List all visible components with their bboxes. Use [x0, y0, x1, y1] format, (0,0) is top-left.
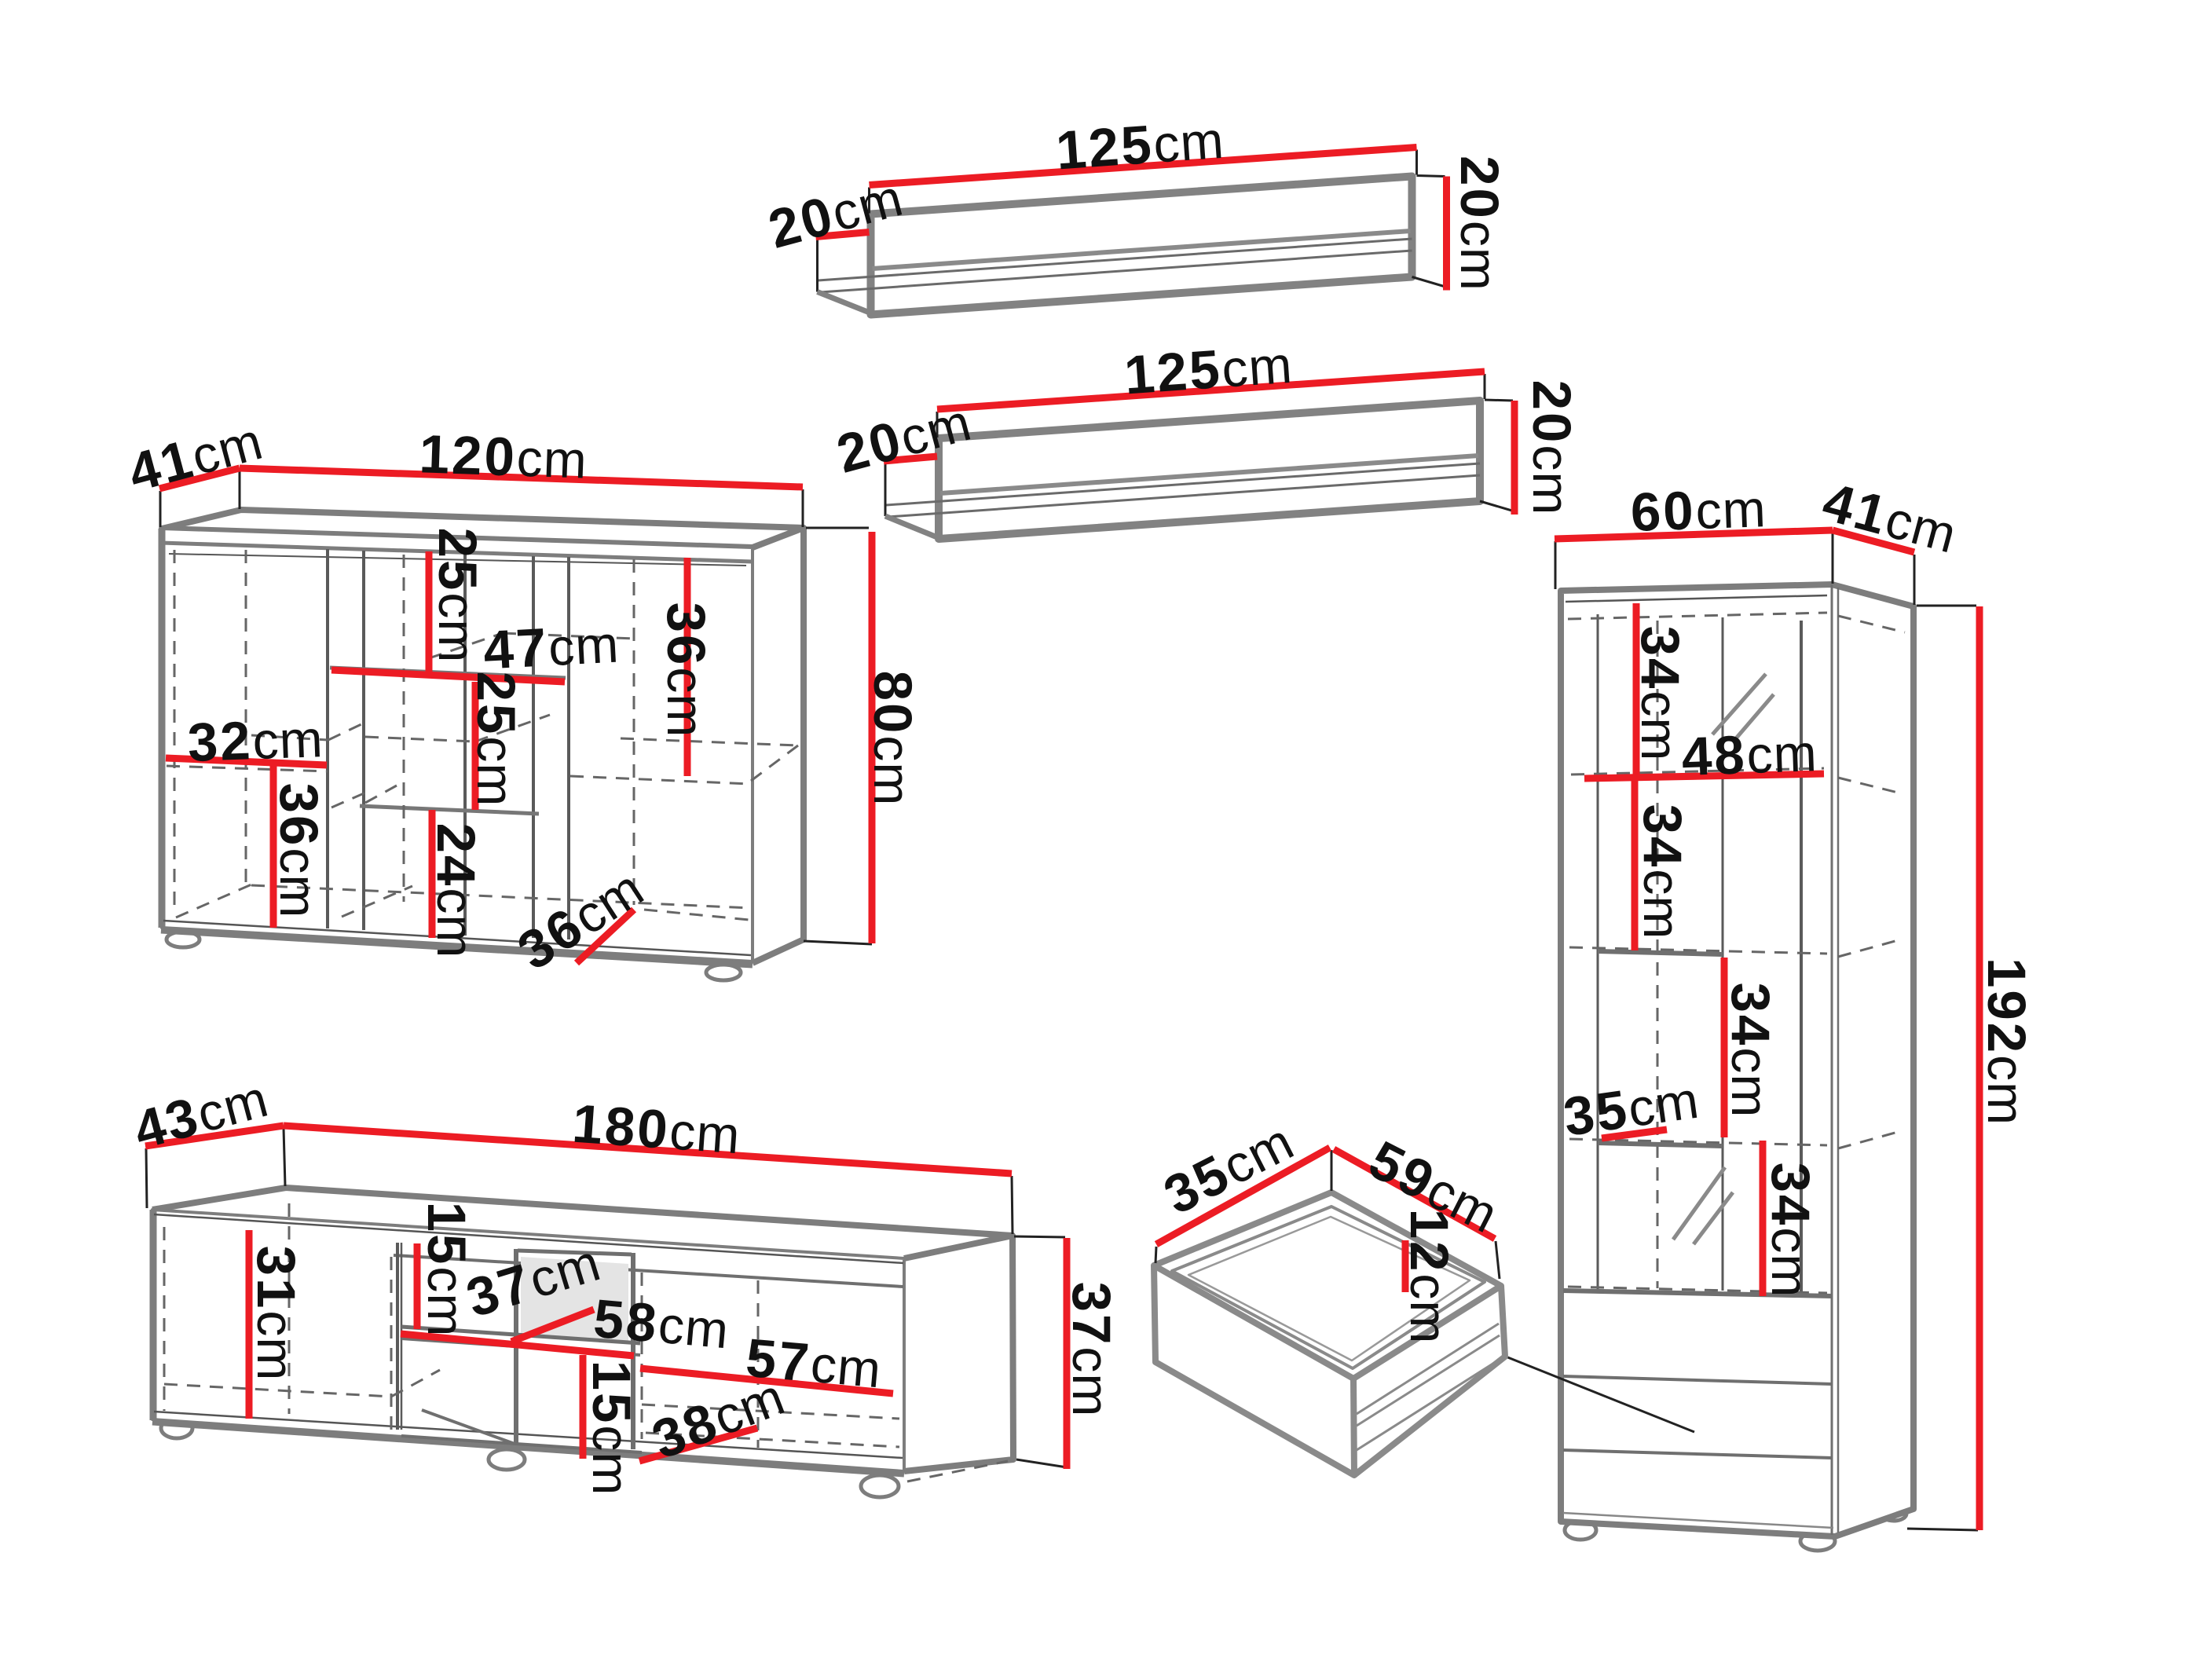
- svg-text:120cm: 120cm: [418, 423, 588, 489]
- svg-text:24cm: 24cm: [426, 823, 486, 959]
- svg-text:60cm: 60cm: [1630, 478, 1767, 543]
- svg-text:34cm: 34cm: [1760, 1163, 1821, 1298]
- svg-text:125cm: 125cm: [1054, 109, 1226, 181]
- svg-text:31cm: 31cm: [246, 1246, 306, 1382]
- svg-text:25cm: 25cm: [466, 672, 526, 808]
- svg-text:80cm: 80cm: [862, 671, 923, 807]
- svg-text:25cm: 25cm: [427, 528, 488, 664]
- svg-text:15cm: 15cm: [581, 1361, 642, 1496]
- svg-text:12cm: 12cm: [1399, 1209, 1459, 1345]
- svg-text:125cm: 125cm: [1122, 334, 1295, 406]
- svg-text:34cm: 34cm: [1720, 983, 1781, 1119]
- svg-text:32cm: 32cm: [187, 708, 324, 773]
- svg-text:180cm: 180cm: [570, 1093, 742, 1166]
- svg-text:36cm: 36cm: [656, 602, 716, 738]
- svg-text:20cm: 20cm: [1522, 380, 1582, 516]
- svg-text:36cm: 36cm: [269, 783, 329, 919]
- svg-text:37cm: 37cm: [1061, 1282, 1122, 1418]
- svg-text:192cm: 192cm: [1976, 958, 2037, 1126]
- svg-text:58cm: 58cm: [591, 1288, 732, 1361]
- svg-text:34cm: 34cm: [1632, 804, 1693, 940]
- svg-text:20cm: 20cm: [1449, 156, 1510, 291]
- svg-text:47cm: 47cm: [482, 613, 621, 681]
- svg-text:48cm: 48cm: [1681, 722, 1818, 787]
